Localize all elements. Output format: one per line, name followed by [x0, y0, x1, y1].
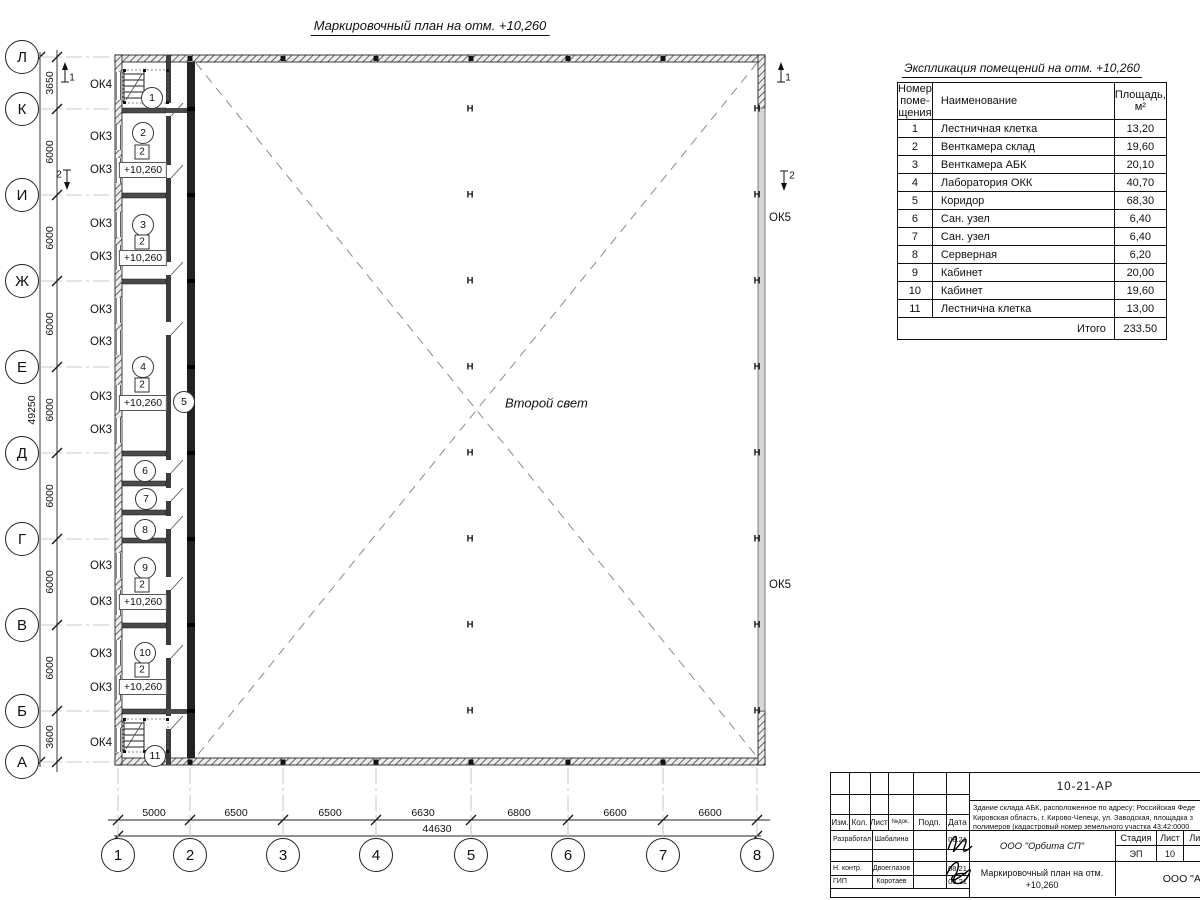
schedule-cell: 13,00 [1114, 300, 1166, 318]
partition-wall [122, 108, 166, 113]
window-band-ok5 [758, 108, 765, 711]
column-mark [661, 56, 666, 61]
sheet-label: Лист [1157, 831, 1184, 846]
stage-value: ЭП [1116, 846, 1157, 862]
schedule-cell: 19,60 [1114, 138, 1166, 156]
schedule-cell: 6,40 [1114, 228, 1166, 246]
wall [758, 711, 765, 765]
schedule-cell: Венткамера АБК [932, 156, 1114, 174]
column-mark [661, 760, 666, 765]
revision-cell [831, 773, 850, 795]
schedule-cell: 13,20 [1114, 120, 1166, 138]
schedule-cell: Сан. узел [932, 228, 1114, 246]
description-line: полимеров (кадастровый номер земельного … [973, 822, 1189, 831]
role-label: ГИП [831, 875, 873, 889]
second-light-wall [187, 62, 195, 758]
role-label: Н. контр. [831, 861, 873, 876]
revision-cell [913, 773, 947, 795]
column-mark [187, 279, 195, 283]
door-opening [165, 262, 172, 275]
door-swing [171, 262, 183, 275]
revision-cell [946, 773, 970, 795]
schedule-total-value: 233.50 [1114, 318, 1166, 340]
schedule-cell: 6 [898, 210, 933, 228]
column-mark [187, 537, 195, 541]
partition-wall [122, 193, 166, 198]
schedule-row: 5Коридор68,30 [898, 192, 1167, 210]
sheet-value: 10 [1157, 846, 1184, 862]
partition-wall [122, 623, 166, 628]
schedule-row: 6Сан. узел6,40 [898, 210, 1167, 228]
sheets-label: Листов [1184, 831, 1200, 846]
schedule-cell: Коридор [932, 192, 1114, 210]
schedule-cell: 3 [898, 156, 933, 174]
schedule-cell: 2 [898, 138, 933, 156]
revision-cell [913, 794, 947, 815]
schedule-cell: 5 [898, 192, 933, 210]
column-header-2: Лист [870, 814, 889, 831]
schedule-cell: Кабинет [932, 264, 1114, 282]
room-strip-wall [166, 55, 171, 765]
partition-wall [122, 709, 166, 714]
design-organization: ООО "Орбита СП" [969, 831, 1116, 862]
wall [115, 758, 765, 765]
schedule-cell: 10 [898, 282, 933, 300]
schedule-title: Экспликация помещений на отм. +10,260 [897, 61, 1147, 75]
schedule-cell: Кабинет [932, 282, 1114, 300]
column-mark [188, 760, 193, 765]
column-mark [187, 193, 195, 197]
schedule-header-row: Номер поме- щения Наименование Площадь, … [898, 83, 1167, 120]
schedule-header-number: Номер поме- щения [898, 83, 933, 120]
schedule-cell: 6,40 [1114, 210, 1166, 228]
schedule-cell: 11 [898, 300, 933, 318]
column-mark [187, 365, 195, 369]
door-opening [165, 322, 172, 335]
schedule-cell: Венткамера склад [932, 138, 1114, 156]
revision-cell [888, 773, 914, 795]
partition-wall [122, 451, 166, 456]
company-name: ООО "Альянс [1116, 862, 1200, 896]
revision-cell [849, 773, 871, 795]
title-block: 10-21-АР Здание склада АБК, расположенно… [830, 772, 1200, 898]
column-mark [566, 760, 571, 765]
column-header-3: №док. [888, 814, 914, 831]
document-code: 10-21-АР [969, 773, 1200, 801]
role-name: Двоеглазов [870, 861, 914, 876]
door-swing [171, 577, 183, 590]
column-mark [188, 56, 193, 61]
door-opening [165, 645, 172, 658]
door-swing [171, 322, 183, 335]
schedule-cell: Серверная [932, 246, 1114, 264]
schedule-row: 1Лестничная клетка13,20 [898, 120, 1167, 138]
door-swing [171, 516, 183, 529]
door-swing [171, 460, 183, 473]
revision-cell [870, 794, 889, 815]
stage-label: Стадия [1116, 831, 1157, 846]
schedule-row: 10Кабинет19,60 [898, 282, 1167, 300]
schedule-row: 3Венткамера АБК20,10 [898, 156, 1167, 174]
column-mark [469, 760, 474, 765]
revision-cell [870, 773, 889, 795]
revision-cell [849, 794, 871, 815]
door-opening [165, 716, 172, 729]
schedule-cell: Сан. узел [932, 210, 1114, 228]
wall [758, 55, 765, 109]
partition-wall [122, 510, 166, 515]
column-mark [374, 760, 379, 765]
drawing-title: Маркировочный план на отм. +10,260 [969, 862, 1116, 896]
role-date: 08.21 [946, 830, 970, 850]
column-mark [187, 107, 195, 111]
column-header-0: Изм. [831, 814, 850, 831]
column-mark [187, 709, 195, 713]
role-signature [913, 875, 947, 889]
column-mark [281, 760, 286, 765]
schedule-cell: 68,30 [1114, 192, 1166, 210]
schedule-header-area: Площадь, м² [1114, 83, 1166, 120]
description-line: Здание склада АБК, расположенное по адре… [973, 803, 1195, 812]
door-opening [165, 460, 172, 473]
role-signature [913, 830, 947, 850]
door-swing [171, 165, 183, 178]
schedule-total-row: Итого 233.50 [898, 318, 1167, 340]
schedule-cell: 19,60 [1114, 282, 1166, 300]
revision-cell [831, 794, 850, 815]
door-opening [165, 165, 172, 178]
plan-title: Маркировочный план на отм. +10,260 [311, 18, 550, 36]
partition-wall [122, 279, 166, 284]
column-mark [374, 56, 379, 61]
schedule-cell: Лестнична клетка [932, 300, 1114, 318]
column-mark [566, 56, 571, 61]
schedule-row: 11Лестнична клетка13,00 [898, 300, 1167, 318]
role-name: Коротаев [870, 875, 914, 889]
role-name: Шабалина [870, 830, 914, 850]
project-description: Здание склада АБК, расположенное по адре… [969, 801, 1200, 831]
door-opening [165, 577, 172, 590]
partition-wall [122, 481, 166, 486]
door-opening [165, 488, 172, 501]
schedule-cell: 8 [898, 246, 933, 264]
schedule-cell: 20,10 [1114, 156, 1166, 174]
wall [115, 55, 765, 62]
schedule-header-name: Наименование [932, 83, 1114, 120]
schedule-row: 7Сан. узел6,40 [898, 228, 1167, 246]
schedule-cell: 20,00 [1114, 264, 1166, 282]
column-mark [187, 623, 195, 627]
revision-cell [946, 794, 970, 815]
schedule-cell: Лаборатория ОКК [932, 174, 1114, 192]
schedule-row: 4Лаборатория ОКК40,70 [898, 174, 1167, 192]
revision-cell [888, 794, 914, 815]
schedule-row: 2Венткамера склад19,60 [898, 138, 1167, 156]
column-header-4: Подп. [913, 814, 947, 831]
door-swing [171, 645, 183, 658]
empty-strip [831, 888, 970, 897]
room-schedule-table: Номер поме- щения Наименование Площадь, … [897, 82, 1167, 340]
schedule-cell: 7 [898, 228, 933, 246]
second-light-label: Второй свет [505, 396, 588, 411]
role-signature [913, 861, 947, 876]
column-mark [187, 451, 195, 455]
schedule-cell: 4 [898, 174, 933, 192]
role-date: 08.21 [946, 861, 970, 876]
column-header-1: Кол. [849, 814, 871, 831]
description-line: Кировская область, г. Кирово-Чепецк, ул.… [973, 813, 1193, 822]
schedule-cell: 1 [898, 120, 933, 138]
door-opening [165, 516, 172, 529]
door-swing [171, 716, 183, 729]
role-date: 08.21 [946, 875, 970, 889]
schedule-cell: 40,70 [1114, 174, 1166, 192]
sheets-value: 1 [1184, 846, 1200, 862]
schedule-cell: Лестничная клетка [932, 120, 1114, 138]
door-swing [171, 488, 183, 501]
drawing-sheet: Маркировочный план на отм. +10,260 Второ… [0, 0, 1200, 900]
column-mark [469, 56, 474, 61]
partition-wall [122, 538, 166, 543]
schedule-total-label: Итого [898, 318, 1115, 340]
column-mark [281, 56, 286, 61]
schedule-cell: 6,20 [1114, 246, 1166, 264]
schedule-row: 8Серверная6,20 [898, 246, 1167, 264]
column-header-5: Дата [946, 814, 970, 831]
role-label: Разработал [831, 830, 873, 850]
schedule-cell: 9 [898, 264, 933, 282]
schedule-row: 9Кабинет20,00 [898, 264, 1167, 282]
